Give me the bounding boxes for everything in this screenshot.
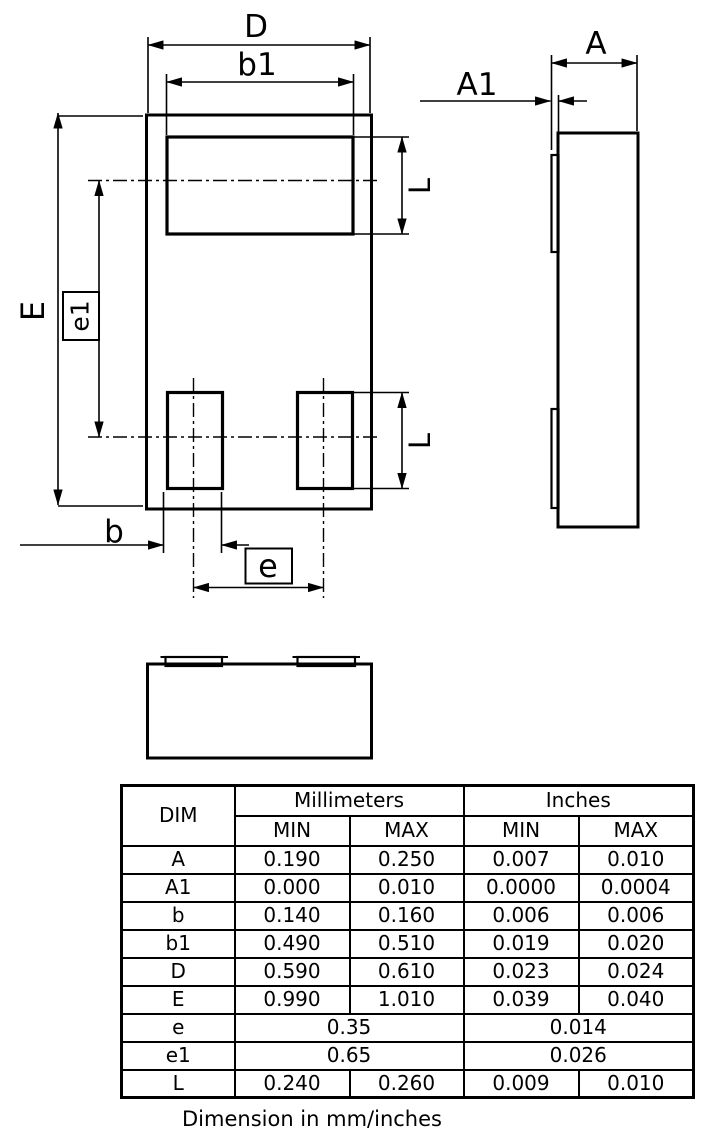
dim-cell: D: [122, 958, 235, 986]
table-row: A10.0000.0100.00000.0004: [122, 874, 694, 902]
value-cell-mm-max: 0.260: [350, 1070, 464, 1098]
dim-label-L-top: L: [403, 178, 437, 194]
value-cell-mm-max: 0.510: [350, 930, 464, 958]
dim-label-A: A: [585, 26, 606, 62]
dim-label-L-bottom: L: [403, 433, 437, 449]
side-view: [552, 133, 639, 527]
header-dim: DIM: [122, 786, 235, 846]
value-cell-mm-max: 0.610: [350, 958, 464, 986]
dim-A1: [420, 95, 587, 133]
table-header-row-groups: DIM Millimeters Inches: [122, 786, 694, 816]
value-cell-mm-max: 0.010: [350, 874, 464, 902]
dim-label-E: E: [14, 301, 52, 321]
header-millimeters: Millimeters: [235, 786, 464, 816]
value-cell-mm-min: 0.000: [235, 874, 350, 902]
dim-label-e: e: [258, 547, 278, 585]
dim-cell: E: [122, 986, 235, 1014]
value-cell-in-max: 0.006: [579, 902, 694, 930]
value-cell-in-max: 0.020: [579, 930, 694, 958]
table-row: b10.4900.5100.0190.020: [122, 930, 694, 958]
value-cell-in-min: 0.007: [464, 846, 579, 874]
value-cell-in-min: 0.023: [464, 958, 579, 986]
dim-cell: e1: [122, 1042, 235, 1070]
outline-drawing-svg: D b1 E e1 L: [0, 0, 720, 780]
value-cell-mm: 0.35: [235, 1014, 464, 1042]
die-pad: [167, 137, 353, 234]
elevation-view: [148, 657, 372, 758]
package-body-outline: [147, 115, 372, 509]
value-cell-in-min: 0.009: [464, 1070, 579, 1098]
dimension-table-body: A0.1900.2500.0070.010A10.0000.0100.00000…: [122, 846, 694, 1098]
value-cell-mm-max: 0.250: [350, 846, 464, 874]
dim-label-b1: b1: [237, 47, 276, 83]
dim-cell: A1: [122, 874, 235, 902]
value-cell-mm-min: 0.990: [235, 986, 350, 1014]
dim-L-top: [354, 137, 409, 234]
value-cell-in-min: 0.006: [464, 902, 579, 930]
table-row: A0.1900.2500.0070.010: [122, 846, 694, 874]
value-cell-mm: 0.65: [235, 1042, 464, 1070]
value-cell-in-max: 0.0004: [579, 874, 694, 902]
value-cell-in-max: 0.010: [579, 1070, 694, 1098]
table-row: e0.350.014: [122, 1014, 694, 1042]
dim-cell: L: [122, 1070, 235, 1098]
value-cell-mm-max: 0.160: [350, 902, 464, 930]
value-cell-in: 0.014: [464, 1014, 694, 1042]
terminal-pad-right: [298, 393, 353, 489]
dim-cell: b: [122, 902, 235, 930]
header-mm-min: MIN: [235, 816, 350, 846]
value-cell-in-max: 0.024: [579, 958, 694, 986]
side-body-outline: [558, 133, 638, 527]
dim-cell: b1: [122, 930, 235, 958]
dim-L-bottom: [353, 393, 409, 489]
elevation-body-outline: [148, 664, 372, 758]
header-inches: Inches: [464, 786, 694, 816]
value-cell-in-min: 0.0000: [464, 874, 579, 902]
package-outline-drawing: D b1 E e1 L: [0, 0, 720, 1144]
header-in-min: MIN: [464, 816, 579, 846]
side-pad-bottom: [552, 409, 559, 508]
header-mm-max: MAX: [350, 816, 464, 846]
terminal-pad-left: [168, 393, 223, 489]
table-row: e10.650.026: [122, 1042, 694, 1070]
side-pad-top: [552, 155, 559, 252]
table-row: D0.5900.6100.0230.024: [122, 958, 694, 986]
dimension-table: DIM Millimeters Inches MIN MAX MIN MAX A…: [120, 784, 695, 1099]
centerlines: [88, 181, 377, 599]
table-row: L0.2400.2600.0090.010: [122, 1070, 694, 1098]
value-cell-in-min: 0.039: [464, 986, 579, 1014]
value-cell-in-max: 0.040: [579, 986, 694, 1014]
header-in-max: MAX: [579, 816, 694, 846]
value-cell-in: 0.026: [464, 1042, 694, 1070]
dim-b: [20, 492, 249, 553]
dim-label-e1: e1: [66, 300, 95, 331]
table-row: b0.1400.1600.0060.006: [122, 902, 694, 930]
value-cell-mm-min: 0.590: [235, 958, 350, 986]
dim-cell: A: [122, 846, 235, 874]
dim-label-A1: A1: [457, 67, 498, 103]
dim-cell: e: [122, 1014, 235, 1042]
value-cell-in-max: 0.010: [579, 846, 694, 874]
value-cell-mm-min: 0.490: [235, 930, 350, 958]
dim-label-b: b: [104, 514, 124, 550]
table-row: E0.9901.0100.0390.040: [122, 986, 694, 1014]
front-view: [147, 115, 372, 509]
table-caption: Dimension in mm/inches: [182, 1107, 442, 1131]
value-cell-mm-min: 0.140: [235, 902, 350, 930]
dim-A: [552, 55, 638, 150]
value-cell-mm-min: 0.240: [235, 1070, 350, 1098]
value-cell-in-min: 0.019: [464, 930, 579, 958]
value-cell-mm-max: 1.010: [350, 986, 464, 1014]
value-cell-mm-min: 0.190: [235, 846, 350, 874]
dim-b1: [167, 74, 354, 135]
dim-label-D: D: [244, 9, 268, 45]
